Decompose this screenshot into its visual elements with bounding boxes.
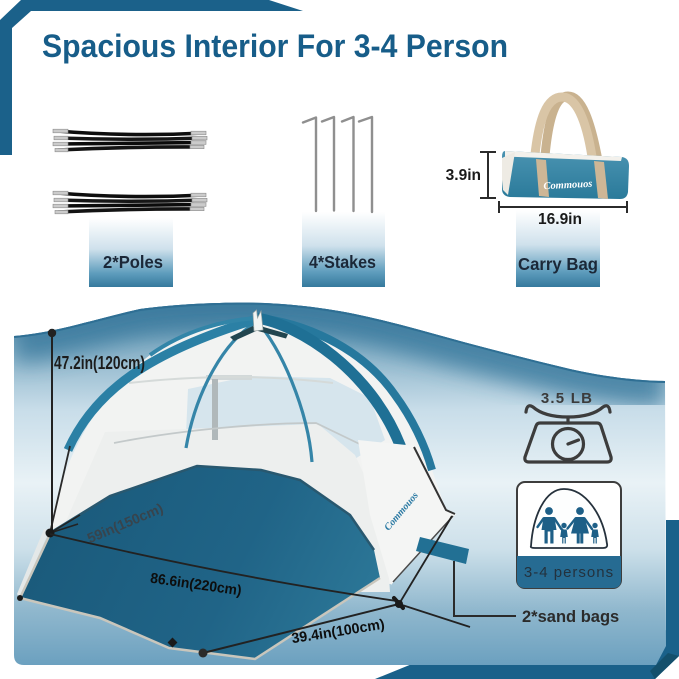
svg-text:Spacious Interior For 3-4 Pers: Spacious Interior For 3-4 Person [42, 28, 508, 64]
svg-text:3.9in: 3.9in [446, 167, 481, 184]
svg-text:16.9in: 16.9in [538, 211, 582, 228]
svg-text:2*Poles: 2*Poles [103, 252, 163, 272]
svg-text:3-4 persons: 3-4 persons [524, 564, 614, 581]
svg-text:4*Stakes: 4*Stakes [309, 252, 376, 272]
svg-text:2*sand bags: 2*sand bags [522, 608, 619, 626]
svg-text:3.5 LB: 3.5 LB [541, 390, 593, 407]
svg-text:47.2in(120cm): 47.2in(120cm) [54, 353, 145, 373]
svg-text:Carry Bag: Carry Bag [518, 254, 598, 274]
